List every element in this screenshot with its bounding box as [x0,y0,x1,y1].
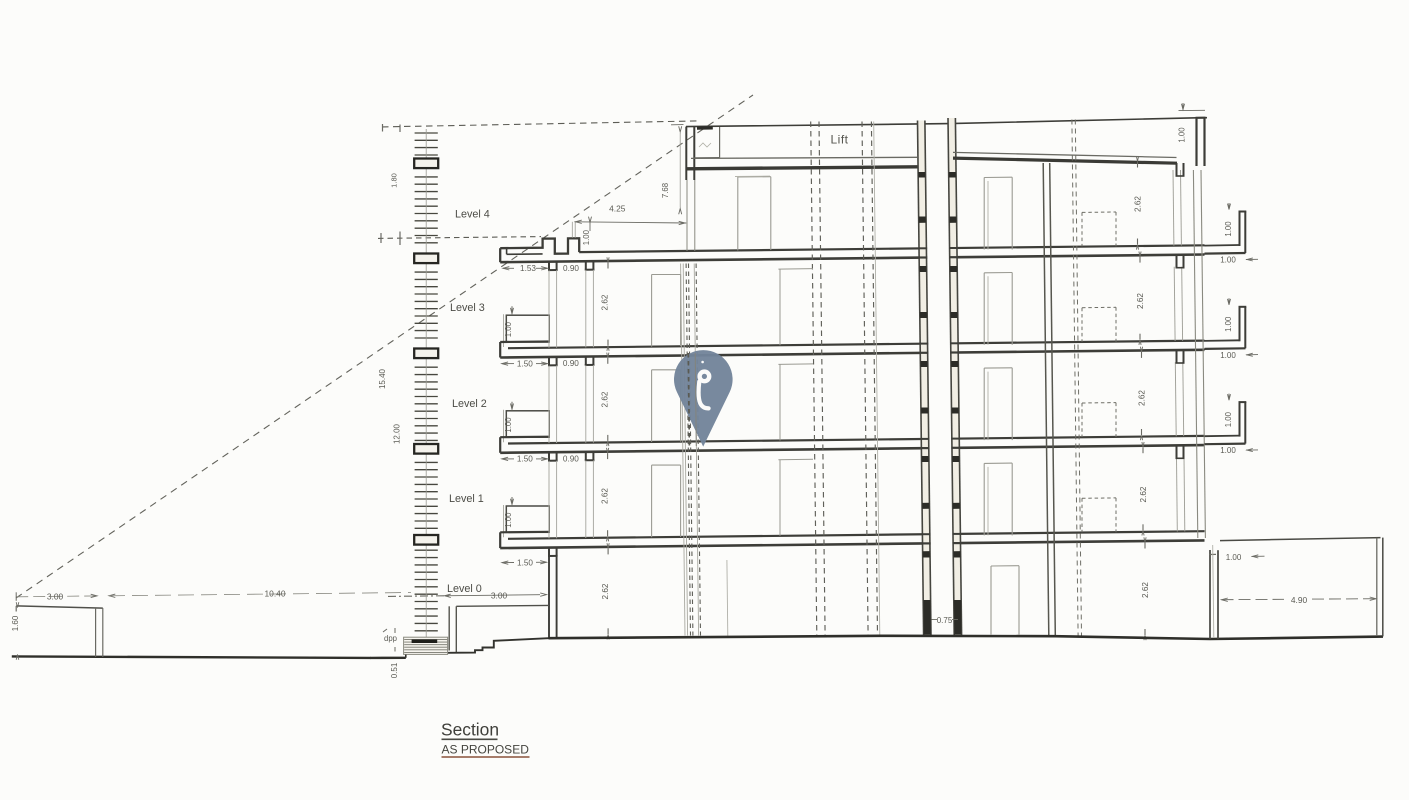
svg-text:1.00: 1.00 [504,417,513,433]
svg-text:Level 0: Level 0 [447,583,482,595]
svg-text:1.53: 1.53 [520,264,536,273]
svg-text:1.00: 1.00 [1224,221,1233,237]
svg-text:1.00: 1.00 [1220,351,1236,360]
svg-text:AS PROPOSED: AS PROPOSED [442,743,530,757]
svg-text:1.00: 1.00 [1224,411,1233,427]
svg-text:1.50: 1.50 [517,455,533,464]
svg-text:2.62: 2.62 [1136,293,1145,309]
svg-text:0.75: 0.75 [937,616,953,625]
svg-text:1.00: 1.00 [1226,553,1242,562]
svg-text:Level 3: Level 3 [450,302,485,314]
svg-text:4.90: 4.90 [1291,595,1308,605]
svg-text:1.00: 1.00 [582,229,591,245]
svg-text:dpp: dpp [384,634,398,643]
svg-text:1.50: 1.50 [517,559,533,568]
svg-text:1.00: 1.00 [504,512,513,528]
svg-text:12.00: 12.00 [393,423,402,444]
svg-text:2.62: 2.62 [1134,196,1143,212]
svg-text:1.80: 1.80 [390,173,399,188]
svg-text:2.62: 2.62 [600,488,609,504]
svg-text:1.00: 1.00 [504,321,513,337]
svg-text:Level 4: Level 4 [455,209,490,221]
svg-text:Section: Section [441,720,499,740]
svg-text:0.90: 0.90 [563,455,579,464]
svg-text:Level 1: Level 1 [449,493,484,505]
svg-text:0.51: 0.51 [390,662,399,678]
svg-text:Lift: Lift [830,133,848,147]
svg-text:1.50: 1.50 [517,359,533,368]
svg-text:4.25: 4.25 [609,204,626,214]
svg-text:2.62: 2.62 [601,583,610,599]
svg-text:10.40: 10.40 [265,589,286,599]
svg-text:0.90: 0.90 [563,359,579,368]
svg-text:2.62: 2.62 [601,294,610,310]
svg-text:3.00: 3.00 [47,592,64,602]
svg-text:15.40: 15.40 [378,368,387,389]
svg-text:2.62: 2.62 [1138,390,1147,406]
svg-text:0.90: 0.90 [563,264,579,273]
svg-text:1.60: 1.60 [11,615,20,631]
svg-text:1.00: 1.00 [1178,127,1187,143]
svg-text:2.62: 2.62 [601,391,610,407]
svg-text:1.00: 1.00 [1220,256,1236,265]
svg-text:1.00: 1.00 [1224,316,1233,332]
svg-text:1.00: 1.00 [1220,446,1236,455]
svg-text:7.68: 7.68 [661,183,670,198]
svg-text:3.00: 3.00 [491,591,508,601]
svg-text:Level 2: Level 2 [452,398,487,410]
svg-text:2.62: 2.62 [1141,582,1150,598]
svg-text:2.62: 2.62 [1139,486,1148,502]
